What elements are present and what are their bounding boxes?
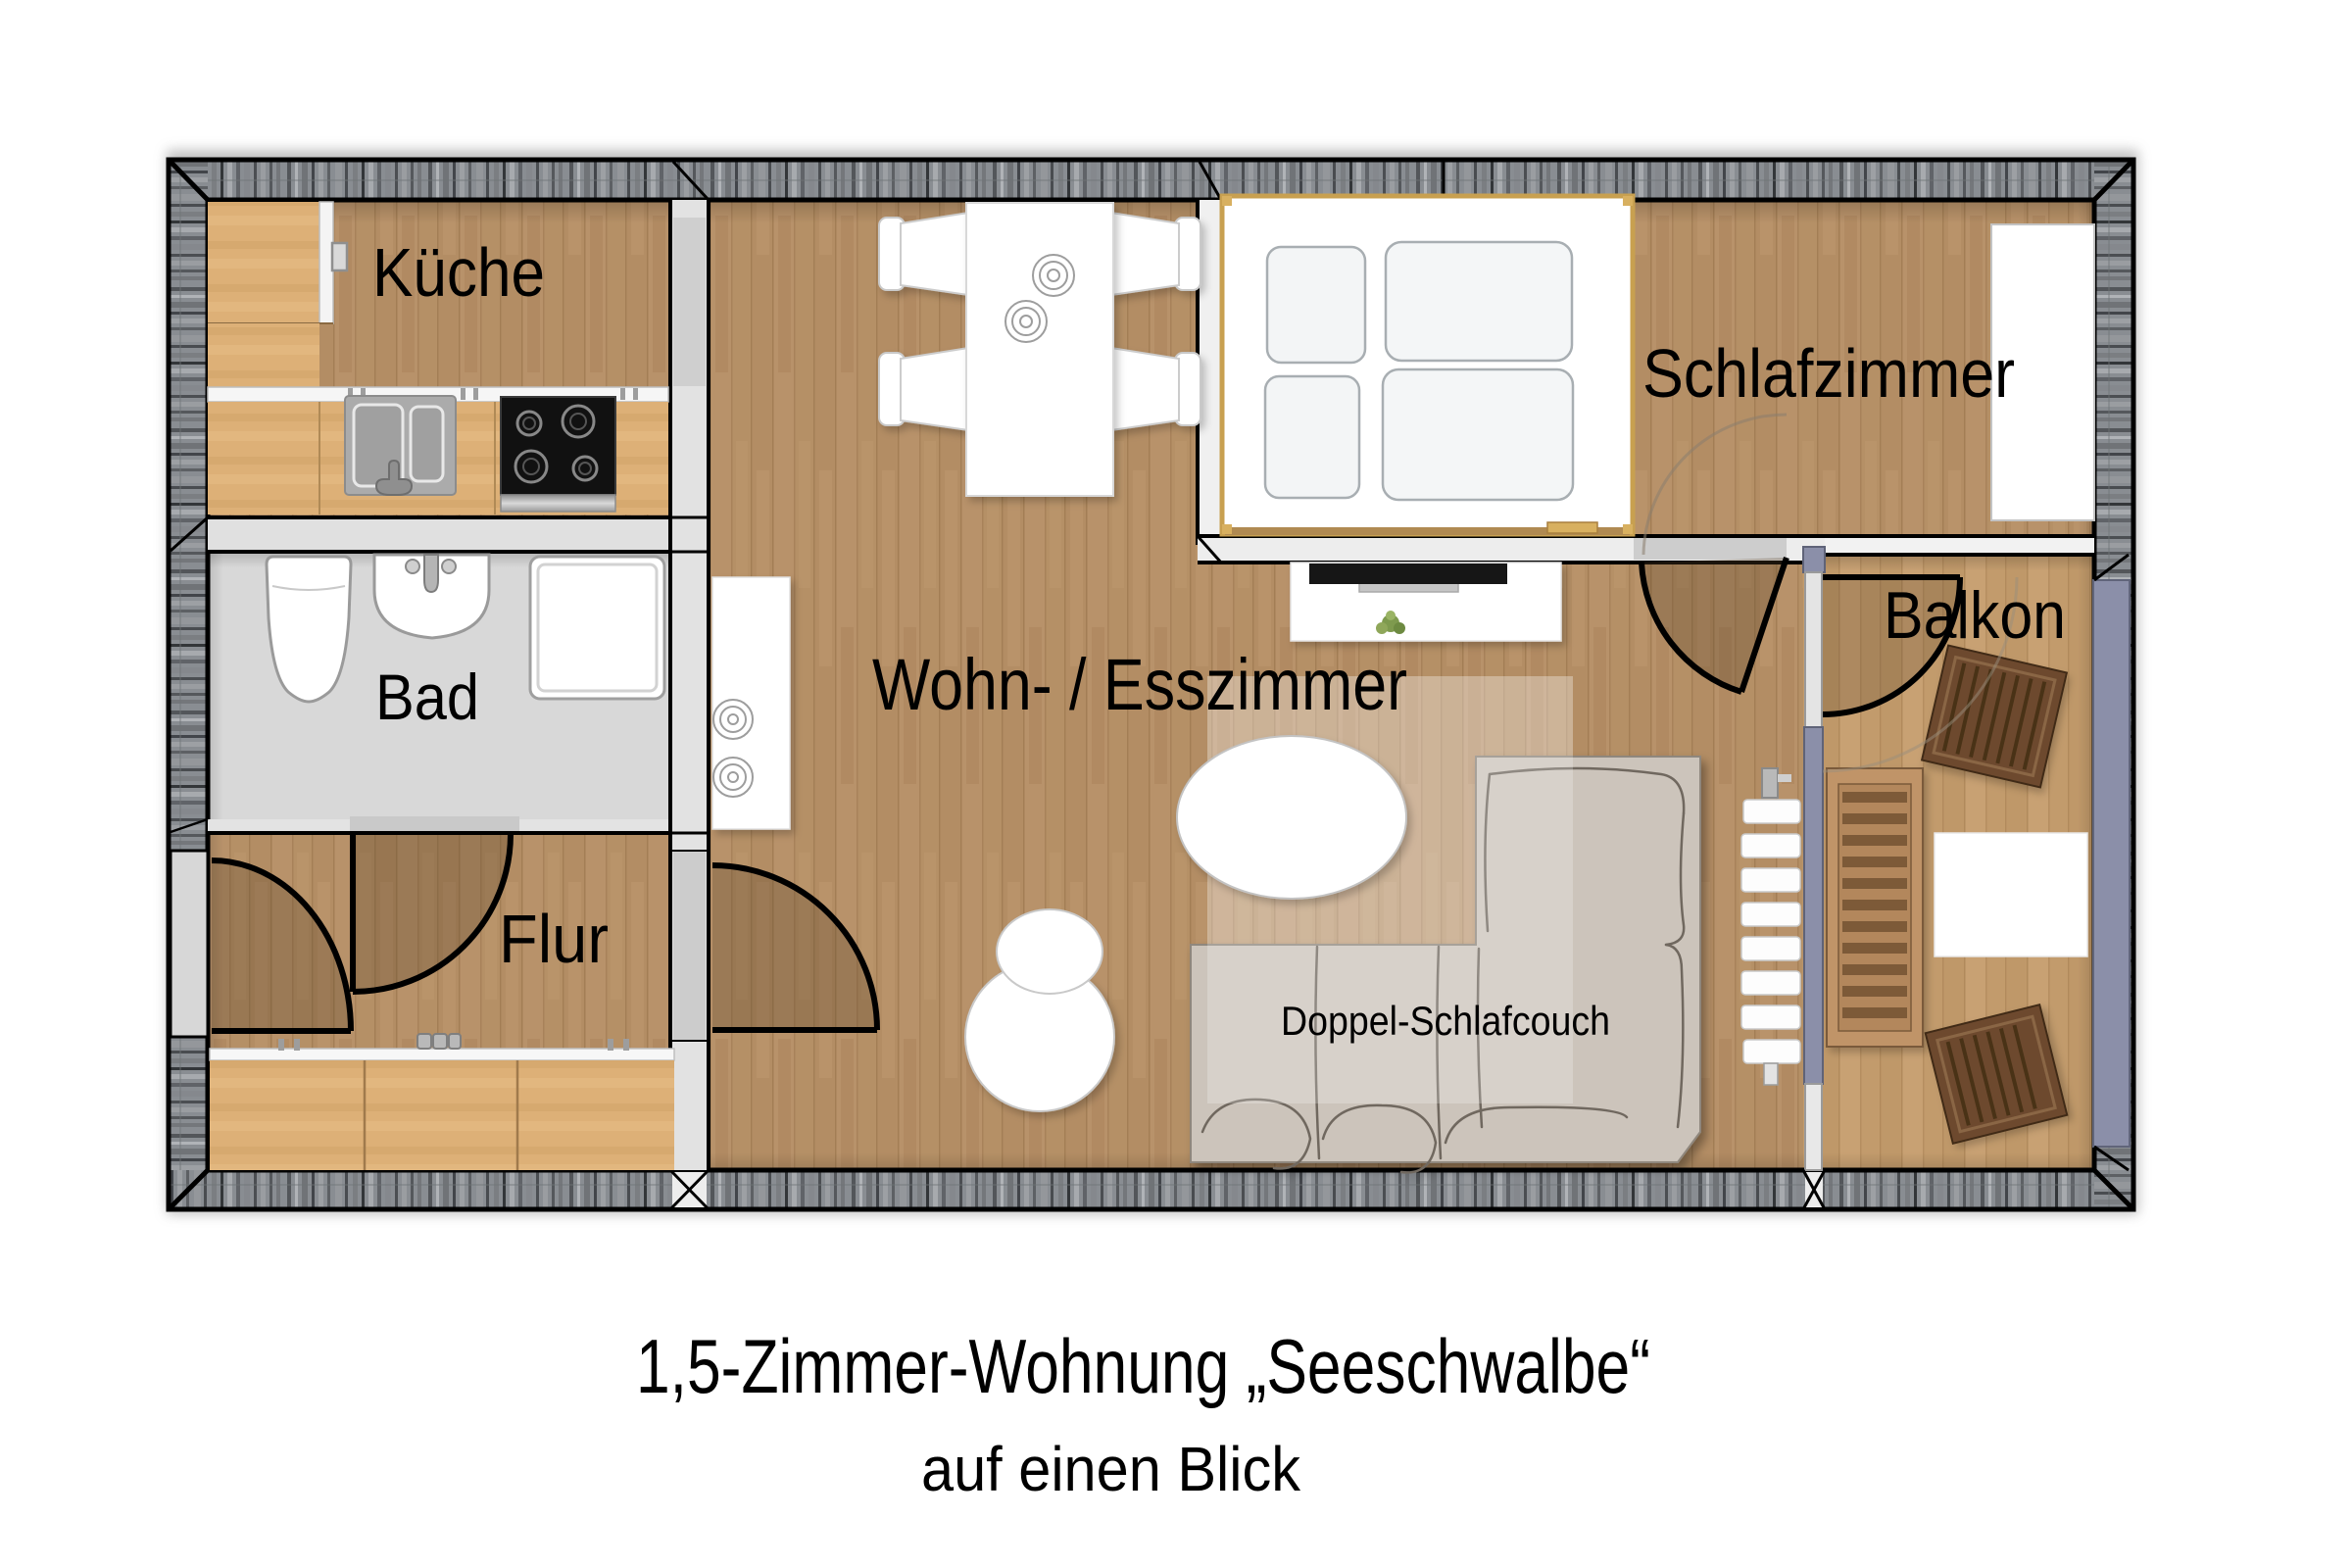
svg-text:Doppel-Schlafcouch: Doppel-Schlafcouch: [1281, 998, 1610, 1044]
svg-text:auf einen Blick: auf einen Blick: [921, 1434, 1301, 1504]
svg-text:Balkon: Balkon: [1884, 578, 2066, 653]
svg-text:Schlafzimmer: Schlafzimmer: [1642, 335, 2015, 412]
svg-text:Flur: Flur: [499, 901, 609, 977]
svg-text:1,5-Zimmer-Wohnung „Seeschwalb: 1,5-Zimmer-Wohnung „Seeschwalbe“: [636, 1323, 1650, 1409]
svg-text:Wohn- / Esszimmer: Wohn- / Esszimmer: [872, 644, 1407, 725]
svg-text:Bad: Bad: [375, 661, 479, 733]
svg-text:Küche: Küche: [372, 234, 545, 311]
